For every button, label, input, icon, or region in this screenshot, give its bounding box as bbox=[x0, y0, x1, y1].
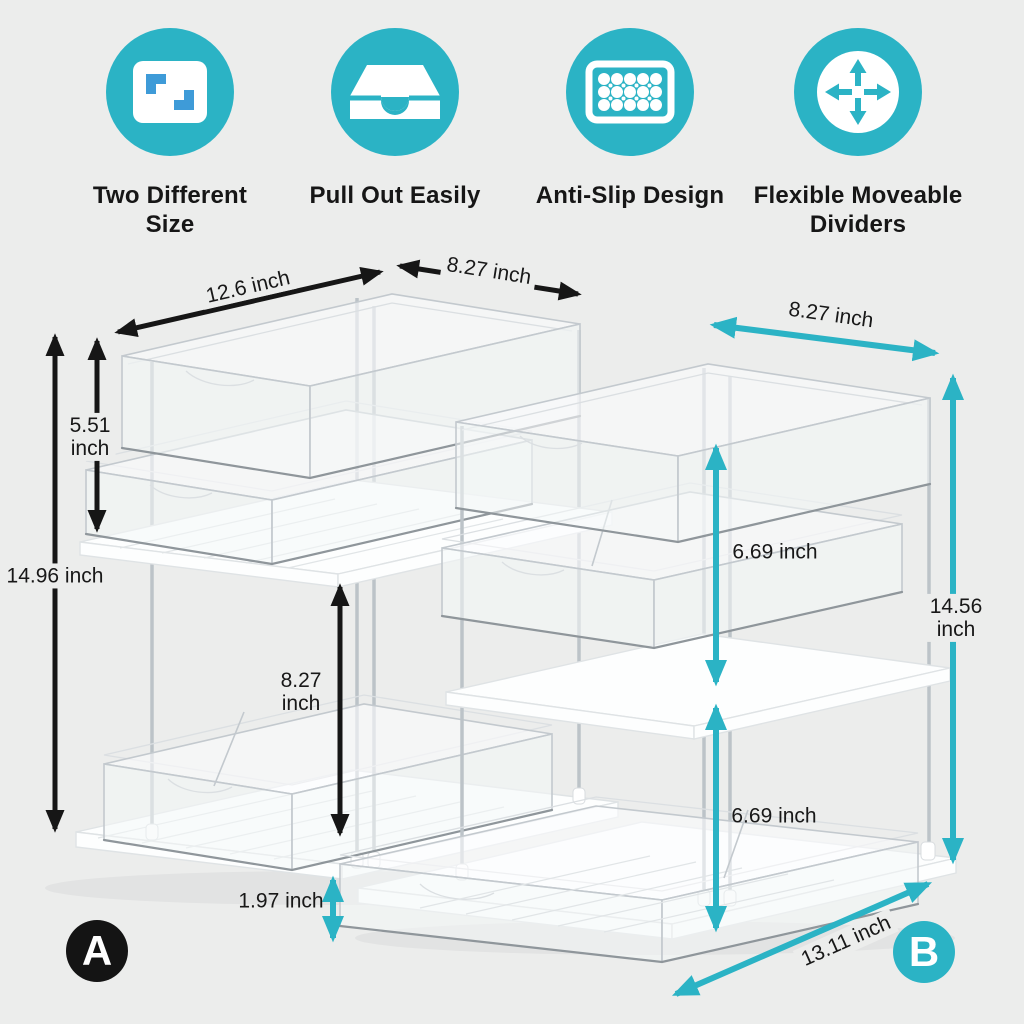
dim-a-total-height: 14.96 inch bbox=[2, 563, 109, 588]
dim-b-lower-tier-height: 6.69 inch bbox=[731, 804, 816, 827]
product-infographic: Two Different Size Pull Out Easily Anti-… bbox=[0, 0, 1024, 1024]
dim-b-total-height: 14.56 inch bbox=[922, 594, 990, 642]
product-illustration bbox=[0, 0, 1024, 1024]
badge-a: A bbox=[66, 920, 128, 982]
dim-a-tray-height: 1.97 inch bbox=[238, 889, 323, 912]
dim-b-upper-tier-height: 6.69 inch bbox=[732, 540, 817, 563]
dim-a-lower-tier-height: 8.27 inch bbox=[281, 669, 322, 715]
dim-a-upper-tier-height: 5.51 inch bbox=[65, 413, 116, 461]
badge-b: B bbox=[893, 921, 955, 983]
